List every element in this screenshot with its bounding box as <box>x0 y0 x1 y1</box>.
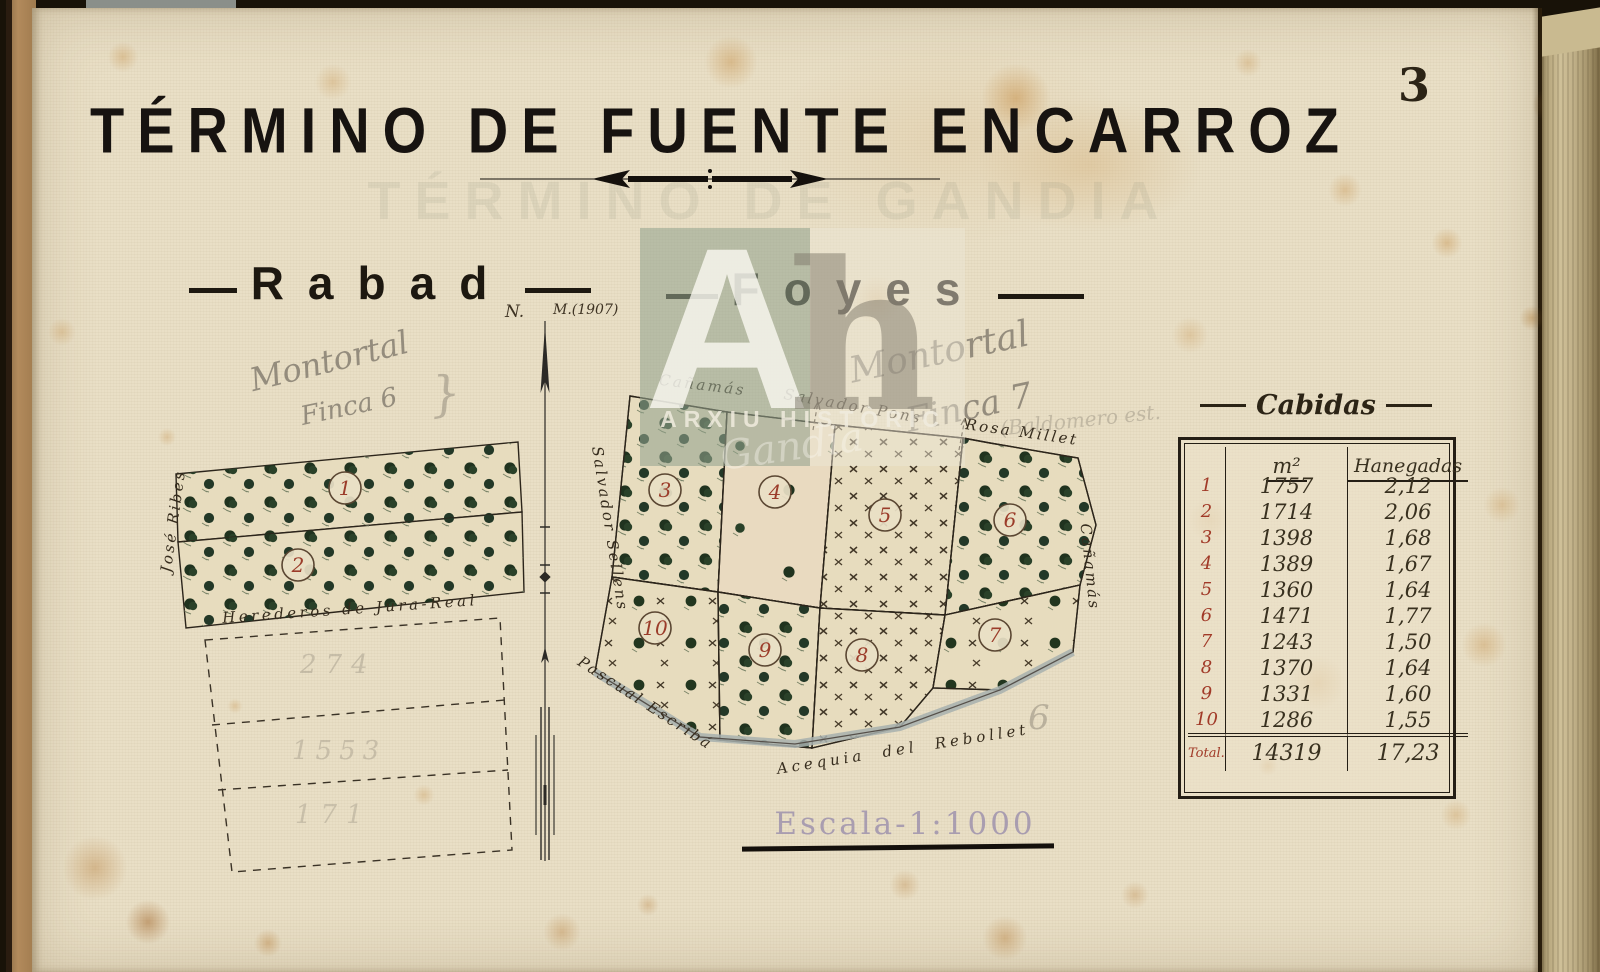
pencil-number-2: 1553 <box>292 736 386 766</box>
dash-ornament <box>1200 404 1246 407</box>
underscore-bar <box>525 288 591 293</box>
row-hanegadas: 1,55 <box>1348 707 1468 733</box>
total-hanegadas: 17,23 <box>1348 733 1468 771</box>
svg-text:4: 4 <box>768 480 782 504</box>
row-m2: 1757 <box>1226 473 1348 499</box>
row-n: 2 <box>1188 499 1226 525</box>
scale-stamp: Escala-1:1000 <box>740 806 1070 842</box>
row-hanegadas: 1,68 <box>1348 525 1468 551</box>
row-n: 5 <box>1188 577 1226 603</box>
svg-text:3: 3 <box>659 478 672 502</box>
row-m2: 1389 <box>1226 551 1348 577</box>
row-n: 7 <box>1188 629 1226 655</box>
page-edge-shadow <box>1532 8 1542 972</box>
row-hanegadas: 1,50 <box>1348 629 1468 655</box>
section-name: Foyes <box>732 262 985 316</box>
row-n: 8 <box>1188 655 1226 681</box>
cabidas-grid: m² Hanegadas 1 1757 2,12 2 1714 2,06 3 1… <box>1188 447 1446 789</box>
row-n: 3 <box>1188 525 1226 551</box>
row-hanegadas: 1,64 <box>1348 655 1468 681</box>
row-hanegadas: 1,77 <box>1348 603 1468 629</box>
svg-text:2: 2 <box>291 553 305 577</box>
cabidas-title-text: Cabidas <box>1256 390 1376 421</box>
total-m2: 14319 <box>1226 733 1348 771</box>
dash-ornament <box>1386 404 1432 407</box>
row-hanegadas: 2,06 <box>1348 499 1468 525</box>
pencil-number-1: 274 <box>300 650 377 680</box>
row-n: 9 <box>1188 681 1226 707</box>
row-m2: 1471 <box>1226 603 1348 629</box>
cabidas-table: m² Hanegadas 1 1757 2,12 2 1714 2,06 3 1… <box>1178 437 1456 799</box>
row-m2: 1331 <box>1226 681 1348 707</box>
foyes-parcels <box>595 396 1096 748</box>
row-n: 10 <box>1188 707 1226 733</box>
section-name: Rabad <box>251 256 512 310</box>
row-n: 6 <box>1188 603 1226 629</box>
row-hanegadas: 2,12 <box>1348 473 1468 499</box>
svg-text:10: 10 <box>642 616 668 640</box>
row-hanegadas: 1,67 <box>1348 551 1468 577</box>
cabidas-title: Cabidas <box>1178 390 1454 421</box>
pencil-brace: } <box>427 365 463 424</box>
page-number: 3 <box>1398 58 1430 112</box>
row-m2: 1370 <box>1226 655 1348 681</box>
svg-text:5: 5 <box>879 503 892 527</box>
row-m2: 1714 <box>1226 499 1348 525</box>
svg-text:9: 9 <box>759 638 772 662</box>
total-label: Total. <box>1188 733 1226 771</box>
svg-text:7: 7 <box>989 623 1002 647</box>
row-hanegadas: 1,60 <box>1348 681 1468 707</box>
pencil-note-map: 6 <box>1028 698 1050 738</box>
row-n: 4 <box>1188 551 1226 577</box>
title-divider-ornament <box>480 166 940 192</box>
book-page-edges <box>1542 26 1600 972</box>
underscore-bar <box>189 288 237 293</box>
pencil-number-3: 171 <box>295 800 372 830</box>
svg-text:8: 8 <box>856 643 869 667</box>
row-m2: 1398 <box>1226 525 1348 551</box>
rabad-parcel-1-marker: 1 <box>329 472 361 504</box>
row-n: 1 <box>1188 473 1226 499</box>
book-scan: { "page": { "number": "3", "title": "TÉR… <box>0 0 1600 972</box>
rabad-parcel-2-marker: 2 <box>282 549 314 581</box>
underscore-bar <box>998 294 1084 299</box>
row-m2: 1243 <box>1226 629 1348 655</box>
svg-text:1: 1 <box>339 476 352 500</box>
svg-text:6: 6 <box>1004 508 1017 532</box>
page-title: TÉRMINO DE FUENTE ENCARROZ <box>90 93 1350 167</box>
section-heading-foyes: Foyes <box>655 262 1095 316</box>
row-hanegadas: 1,64 <box>1348 577 1468 603</box>
underscore-bar <box>666 294 718 299</box>
row-m2: 1360 <box>1226 577 1348 603</box>
row-m2: 1286 <box>1226 707 1348 733</box>
